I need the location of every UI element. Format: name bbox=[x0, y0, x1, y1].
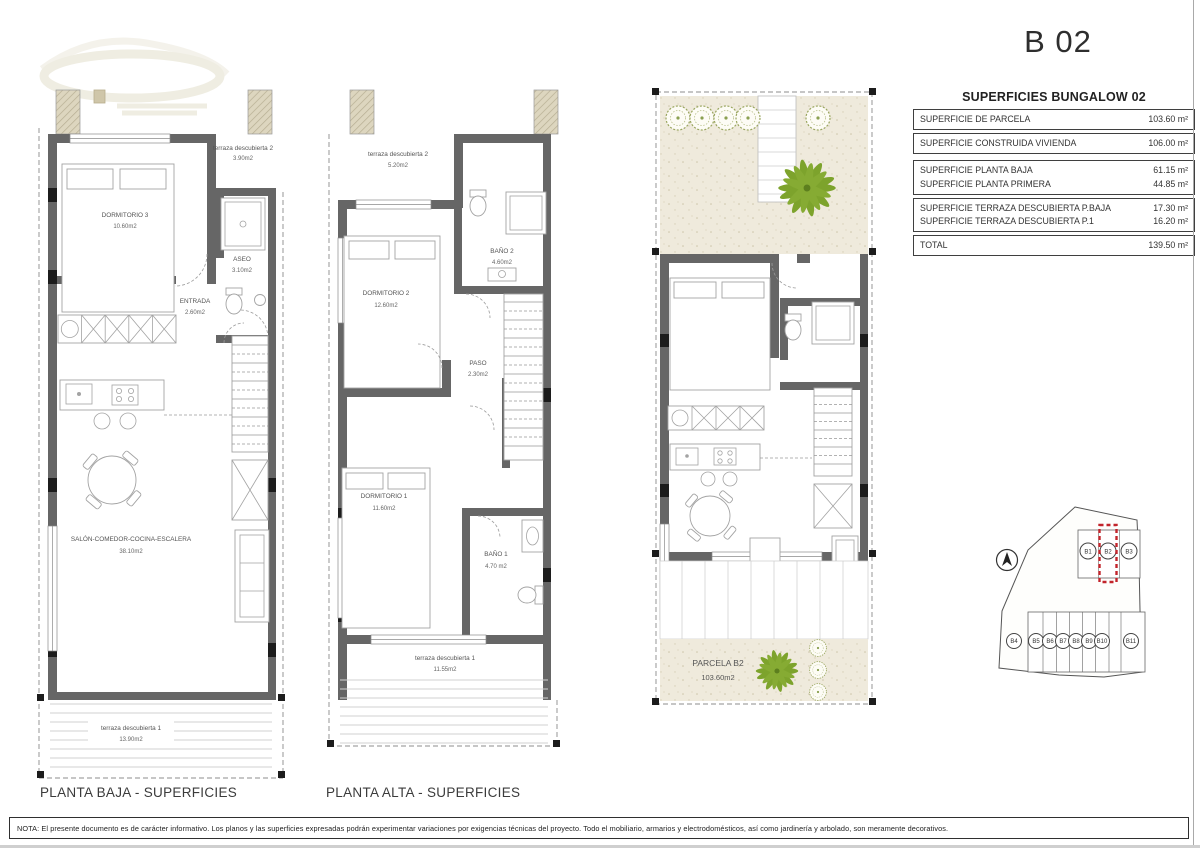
sink bbox=[255, 295, 266, 306]
sofa bbox=[235, 530, 269, 622]
bush bbox=[714, 106, 738, 130]
shower bbox=[506, 192, 546, 234]
north-arrow-icon bbox=[997, 550, 1018, 571]
understair-storage bbox=[814, 484, 852, 528]
door-arc bbox=[478, 516, 500, 538]
table-row-group-total: TOTAL139.50 m² bbox=[913, 235, 1195, 256]
row-label: TOTAL bbox=[920, 239, 948, 252]
room-area: 13.90m2 bbox=[119, 737, 143, 743]
room-label: terraza descubierta 1 bbox=[415, 655, 475, 662]
floor-plan-planta-alta: terraza descubierta 2 5.20m2 BAÑO 2 4.60… bbox=[326, 88, 561, 788]
bush bbox=[810, 684, 827, 701]
sink bbox=[488, 268, 516, 281]
room-area: 2.30m2 bbox=[468, 372, 489, 378]
kitchen-island bbox=[670, 444, 760, 486]
room-area: 11.60m2 bbox=[373, 506, 397, 512]
dining-table bbox=[67, 435, 157, 525]
bush bbox=[736, 106, 760, 130]
table-row-group: SUPERFICIE TERRAZA DESCUBIERTA P.BAJA17.… bbox=[913, 198, 1195, 232]
party-wall-hatch bbox=[56, 90, 272, 134]
stairs bbox=[814, 388, 852, 476]
door-arc bbox=[466, 294, 490, 318]
room-area: 10.60m2 bbox=[113, 224, 137, 230]
room-label: SALÓN-COMEDOR-COCINA-ESCALERA bbox=[71, 534, 192, 543]
surfaces-table-title: SUPERFICIES BUNGALOW 02 bbox=[913, 90, 1195, 104]
bush bbox=[810, 640, 827, 657]
dining-table bbox=[671, 477, 750, 556]
lot-label: B11 bbox=[1126, 639, 1137, 645]
kitchen-island bbox=[60, 380, 164, 429]
room-label: BAÑO 1 bbox=[484, 549, 508, 558]
room-label: DORMITORIO 2 bbox=[363, 290, 410, 297]
row-label: SUPERFICIE PLANTA BAJA bbox=[920, 164, 1033, 177]
lot-label: B3 bbox=[1125, 549, 1133, 555]
sink bbox=[522, 520, 543, 552]
site-plan: B1 B2 B3 B4 B5 B6 B7 B8 B9 B10 B11 bbox=[980, 495, 1190, 690]
room-area: 3.90m2 bbox=[233, 156, 254, 162]
door-arc bbox=[470, 406, 494, 430]
bed bbox=[342, 468, 430, 628]
page-border-right bbox=[1193, 0, 1194, 848]
terrace-deck bbox=[37, 694, 285, 778]
lot-label: B1 bbox=[1084, 549, 1092, 555]
row-value: 139.50 m² bbox=[1148, 239, 1188, 252]
row-value: 44.85 m² bbox=[1153, 178, 1188, 191]
lot-label: B7 bbox=[1059, 639, 1067, 645]
kitchen-counter bbox=[58, 315, 176, 343]
row-label: SUPERFICIE CONSTRUIDA VIVIENDA bbox=[920, 137, 1076, 150]
stairs bbox=[232, 336, 268, 452]
terrace-deck bbox=[327, 680, 560, 747]
toilet bbox=[470, 190, 486, 216]
toilet bbox=[785, 314, 801, 340]
room-label: terraza descubierta 2 bbox=[368, 151, 428, 158]
row-label: SUPERFICIE TERRAZA DESCUBIERTA P.BAJA bbox=[920, 202, 1111, 215]
lot-label: B8 bbox=[1072, 639, 1080, 645]
parcel-area: 103.60m2 bbox=[701, 673, 734, 682]
note-bar: NOTA: El presente documento es de caráct… bbox=[9, 817, 1189, 839]
row-label: SUPERFICIE PLANTA PRIMERA bbox=[920, 178, 1051, 191]
row-label: SUPERFICIE DE PARCELA bbox=[920, 113, 1030, 126]
row-value: 106.00 m² bbox=[1148, 137, 1188, 150]
surfaces-table: SUPERFICIES BUNGALOW 02 SUPERFICIE DE PA… bbox=[913, 90, 1195, 259]
table-row-group: SUPERFICIE PLANTA BAJA61.15 m² SUPERFICI… bbox=[913, 160, 1195, 194]
page-title: B 02 bbox=[998, 24, 1118, 60]
room-label: terraza descubierta 2 bbox=[213, 145, 273, 152]
understair-storage bbox=[232, 460, 268, 520]
bed bbox=[670, 278, 770, 390]
room-area: 4.70 m2 bbox=[485, 564, 507, 570]
toilet bbox=[226, 288, 242, 314]
parcel-label: PARCELA B2 bbox=[692, 658, 744, 668]
stairs bbox=[504, 294, 543, 460]
table-row-group: SUPERFICIE CONSTRUIDA VIVIENDA106.00 m² bbox=[913, 133, 1195, 154]
bed bbox=[62, 164, 174, 312]
lot-label: B9 bbox=[1085, 639, 1093, 645]
row-value: 103.60 m² bbox=[1148, 113, 1188, 126]
room-area: 3.10m2 bbox=[232, 268, 253, 274]
lot-label: B6 bbox=[1046, 639, 1054, 645]
room-label: DORMITORIO 1 bbox=[361, 493, 408, 500]
room-label: terraza descubierta 1 bbox=[101, 725, 161, 732]
room-label: PASO bbox=[469, 360, 486, 367]
kitchen-counter bbox=[668, 406, 764, 430]
bush bbox=[666, 106, 690, 130]
room-label: ENTRADA bbox=[180, 298, 211, 305]
terrace-tiles bbox=[660, 561, 868, 639]
lot-label: B2 bbox=[1104, 549, 1112, 555]
bush bbox=[690, 106, 714, 130]
row-value: 17.30 m² bbox=[1153, 202, 1188, 215]
room-label: BAÑO 2 bbox=[490, 246, 514, 255]
caption-planta-alta: PLANTA ALTA - SUPERFICIES bbox=[326, 785, 520, 800]
bush bbox=[806, 106, 830, 130]
caption-planta-baja: PLANTA BAJA - SUPERFICIES bbox=[40, 785, 237, 800]
lot-label: B10 bbox=[1097, 639, 1108, 645]
table-row-group: SUPERFICIE DE PARCELA103.60 m² bbox=[913, 109, 1195, 130]
room-area: 5.20m2 bbox=[388, 163, 409, 169]
row-value: 16.20 m² bbox=[1153, 215, 1188, 228]
floor-plan-parcela: PARCELA B2 103.60m2 bbox=[652, 88, 877, 718]
row-label: SUPERFICIE TERRAZA DESCUBIERTA P.1 bbox=[920, 215, 1094, 228]
lot-label: B5 bbox=[1032, 639, 1040, 645]
room-label: DORMITORIO 3 bbox=[102, 212, 149, 219]
room-area: 2.60m2 bbox=[185, 310, 206, 316]
row-value: 61.15 m² bbox=[1153, 164, 1188, 177]
room-area: 4.60m2 bbox=[492, 260, 513, 266]
toilet bbox=[518, 586, 543, 604]
party-wall-hatch bbox=[350, 90, 558, 134]
plan-sheet: B 02 bbox=[0, 0, 1200, 848]
shower bbox=[221, 198, 265, 250]
shower bbox=[812, 302, 854, 344]
floor-plan-planta-baja: terraza descubierta 2 3.90m2 DORMITORIO … bbox=[36, 88, 286, 788]
lot-label: B4 bbox=[1010, 639, 1018, 645]
room-area: 12.60m2 bbox=[374, 303, 398, 309]
room-label: ASEO bbox=[233, 256, 251, 263]
bed bbox=[344, 236, 440, 388]
room-area: 11.55m2 bbox=[434, 667, 458, 673]
entry-door-arc bbox=[240, 310, 268, 338]
bush bbox=[810, 662, 827, 679]
room-area: 38.10m2 bbox=[119, 549, 143, 555]
note-text: NOTA: El presente documento es de caráct… bbox=[17, 824, 948, 833]
door-arc bbox=[175, 254, 207, 286]
